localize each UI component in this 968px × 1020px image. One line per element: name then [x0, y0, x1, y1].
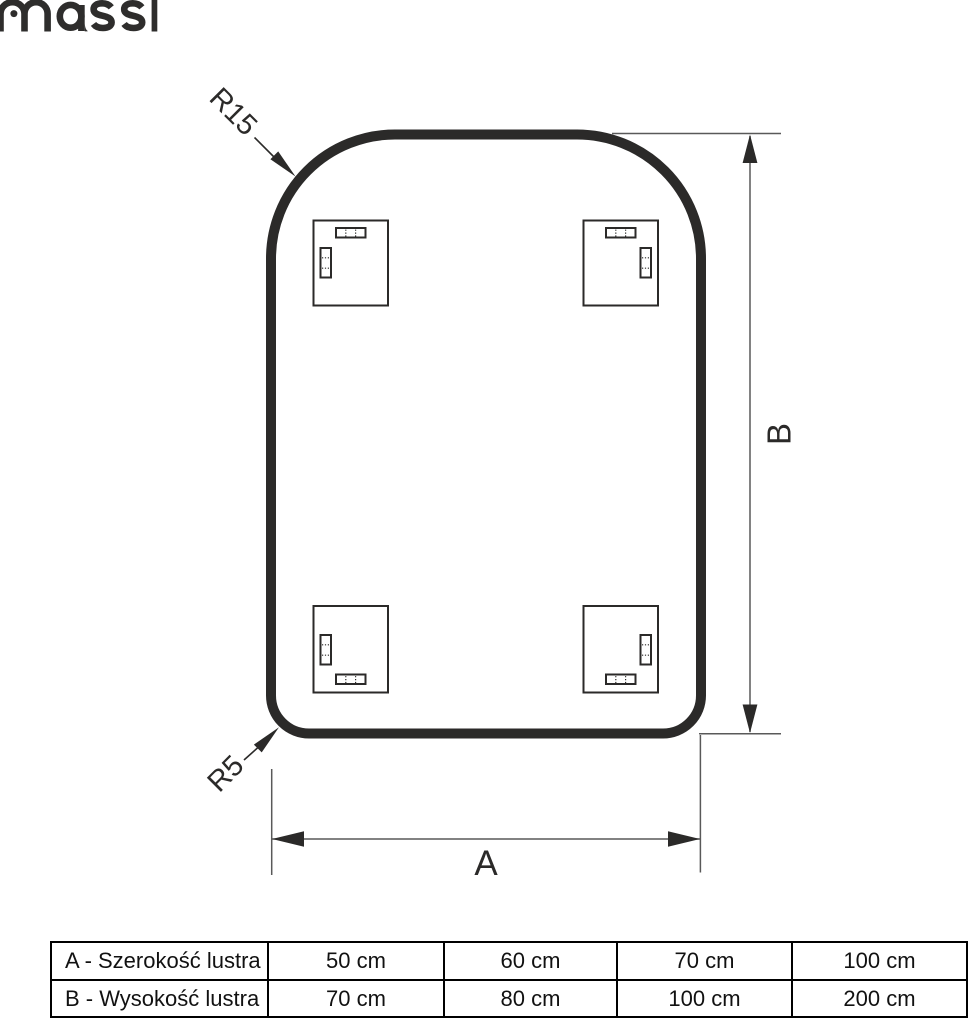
svg-text:B: B [761, 423, 798, 445]
svg-text:R5: R5 [202, 750, 251, 799]
svg-text:A: A [474, 844, 498, 883]
svg-text:R15: R15 [203, 82, 263, 142]
